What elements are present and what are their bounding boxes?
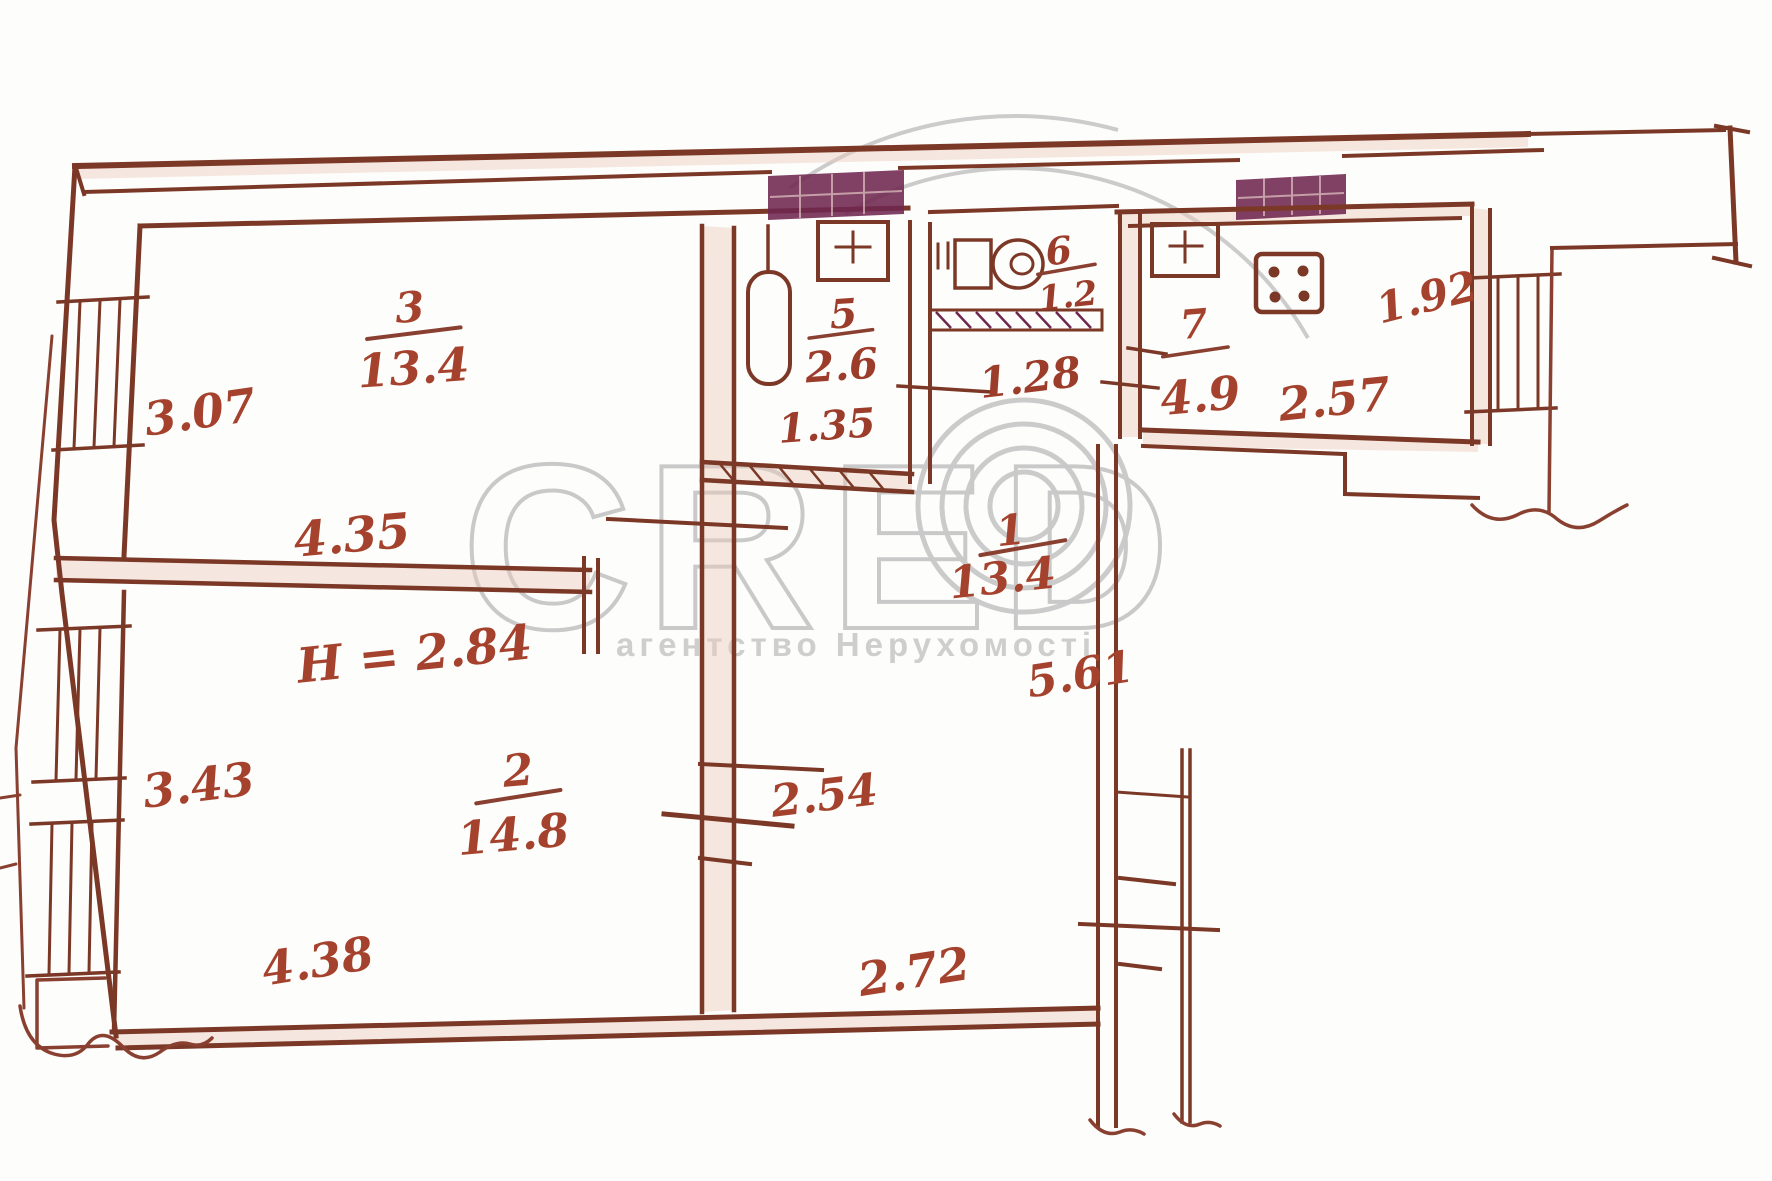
dim-room3-width: 4.35 xyxy=(291,503,412,569)
kitchen-area: 4.9 xyxy=(1158,365,1242,426)
bathroom-area: 2.6 xyxy=(802,338,879,392)
dim-room2-width: 4.38 xyxy=(258,926,377,997)
room2-number: 2 xyxy=(499,744,535,798)
wc-label: 6 1.2 xyxy=(1031,224,1100,319)
right-balcony-outline xyxy=(1472,126,1750,528)
toilet-icon xyxy=(938,240,1043,288)
room3-area: 13.4 xyxy=(356,337,472,399)
kitchen-label: 7 4.9 xyxy=(1152,298,1242,427)
dim-bath-width: 1.35 xyxy=(777,399,877,453)
vent-shaft-block-right xyxy=(1236,174,1346,220)
dim-hall-w2: 2.72 xyxy=(853,936,973,1007)
scanned-floor-plan-page: CRED агентство Нерухомості xyxy=(0,0,1772,1181)
wc-area: 1.2 xyxy=(1036,273,1099,319)
dim-room2-depth: 3.43 xyxy=(140,752,258,819)
room2-area: 14.8 xyxy=(455,802,571,866)
dim-lobby-width: 1.28 xyxy=(976,347,1084,408)
vent-box-bathroom-icon xyxy=(818,222,888,280)
dim-kitchen-width: 2.57 xyxy=(1275,366,1393,432)
stove-icon xyxy=(1256,254,1322,312)
room3-label: 3 13.4 xyxy=(351,279,471,399)
dim-hall-w1: 2.54 xyxy=(767,764,881,828)
dim-room3-depth: 3.07 xyxy=(141,378,259,447)
bathroom-label: 5 2.6 xyxy=(799,289,880,393)
floor-plan-canvas: CRED агентство Нерухомості xyxy=(0,0,1772,1181)
vent-shaft-block-left xyxy=(768,170,904,220)
room3-number: 3 xyxy=(393,282,426,333)
vent-box-kitchen-icon xyxy=(1152,224,1218,276)
kitchen-number: 7 xyxy=(1178,300,1210,349)
water-heater-icon xyxy=(748,226,790,384)
ceiling-height-label: H = 2.84 xyxy=(292,614,534,695)
dim-kitchen-depth: 1.92 xyxy=(1371,261,1482,333)
room2-label: 2 14.8 xyxy=(450,742,572,866)
window-icon-room2-lower xyxy=(27,820,123,976)
